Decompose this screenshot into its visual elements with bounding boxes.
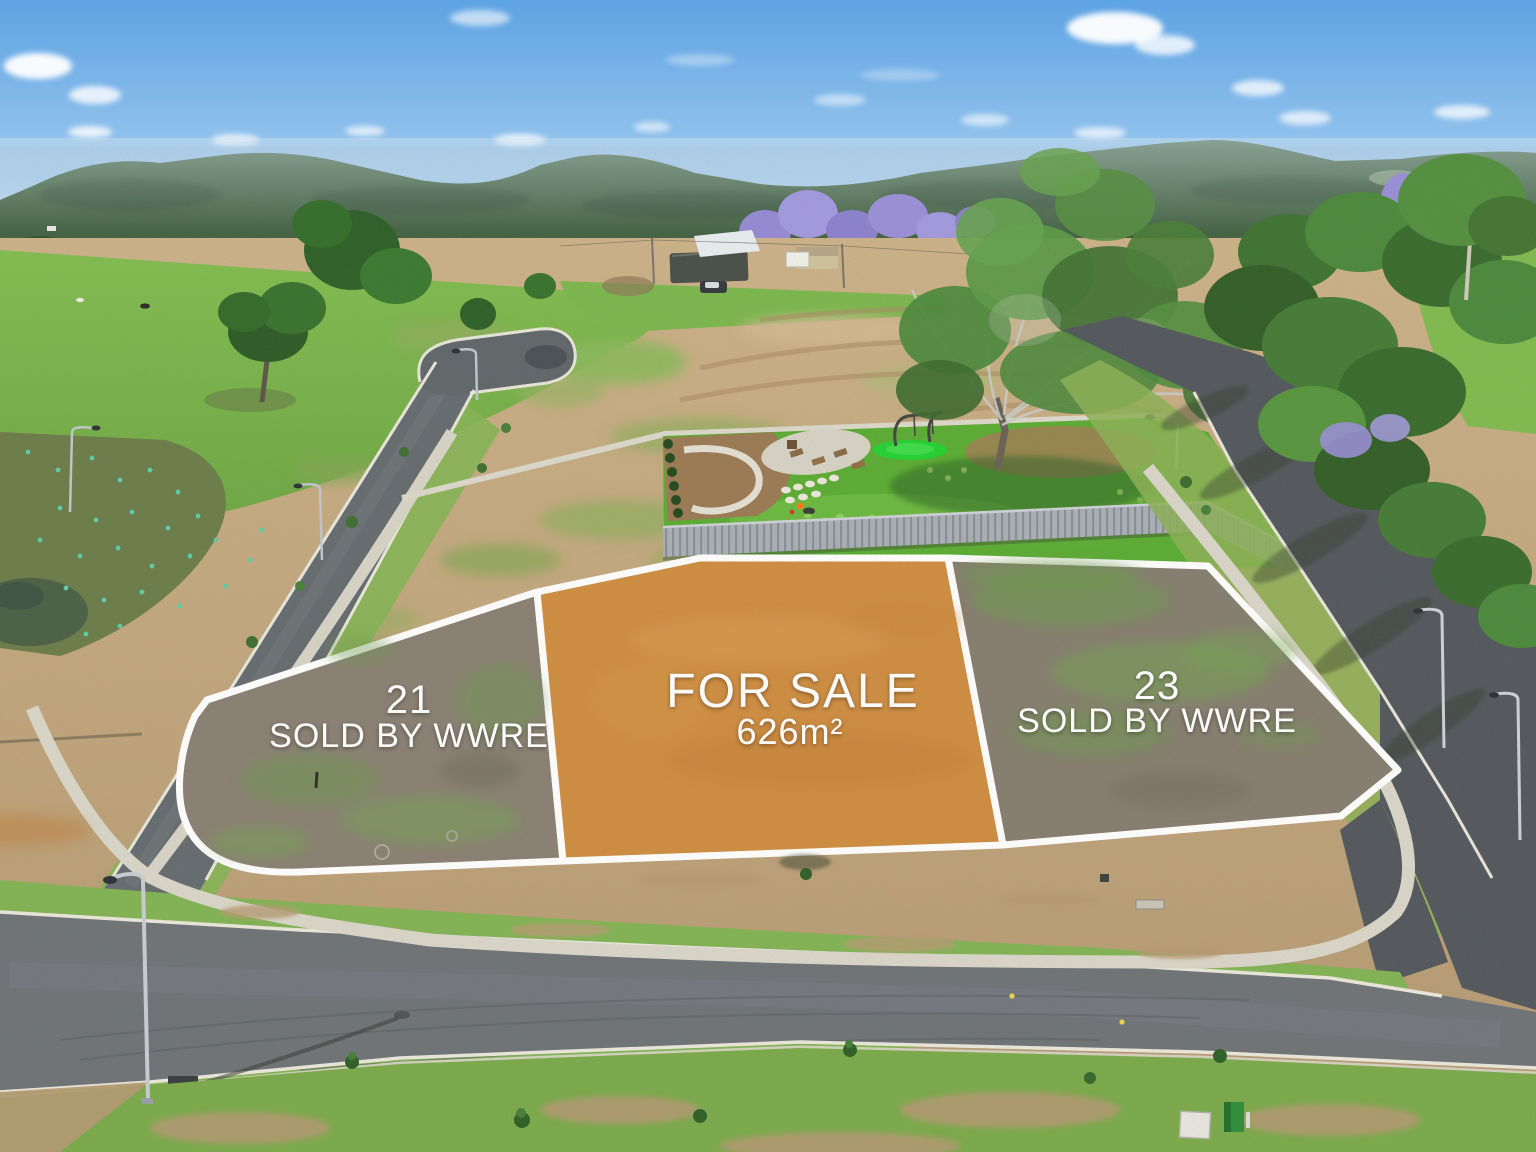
photo-grain [0, 238, 1536, 1152]
aerial-photo: 21 SOLD BY WWRE FOR SALE 626m² 23 SOLD B… [0, 0, 1536, 1152]
aerial-photo-scene: 21 SOLD BY WWRE FOR SALE 626m² 23 SOLD B… [0, 0, 1536, 1152]
